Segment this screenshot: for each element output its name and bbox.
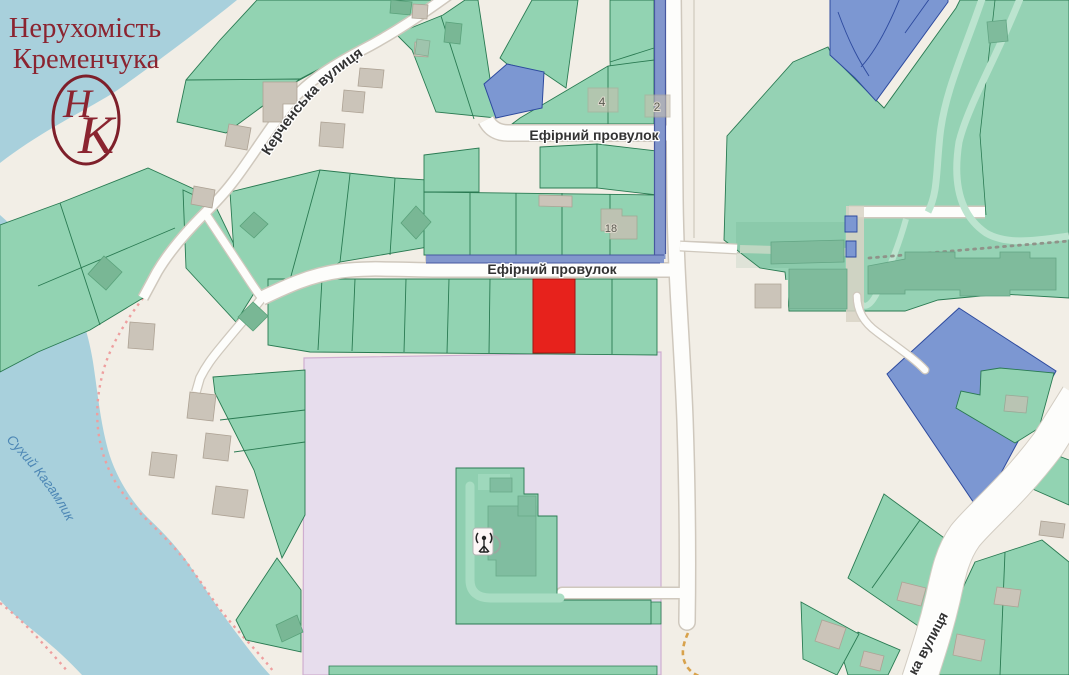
svg-text:Кременчука: Кременчука	[13, 44, 160, 75]
svg-text:4: 4	[599, 95, 606, 109]
svg-text:2: 2	[654, 100, 661, 114]
svg-text:Нерухомість: Нерухомість	[9, 13, 161, 44]
svg-text:Ефірний провулок: Ефірний провулок	[487, 261, 617, 277]
svg-text:К: К	[77, 105, 117, 165]
svg-text:18: 18	[605, 223, 617, 235]
svg-text:Ефірний провулок: Ефірний провулок	[529, 127, 659, 143]
